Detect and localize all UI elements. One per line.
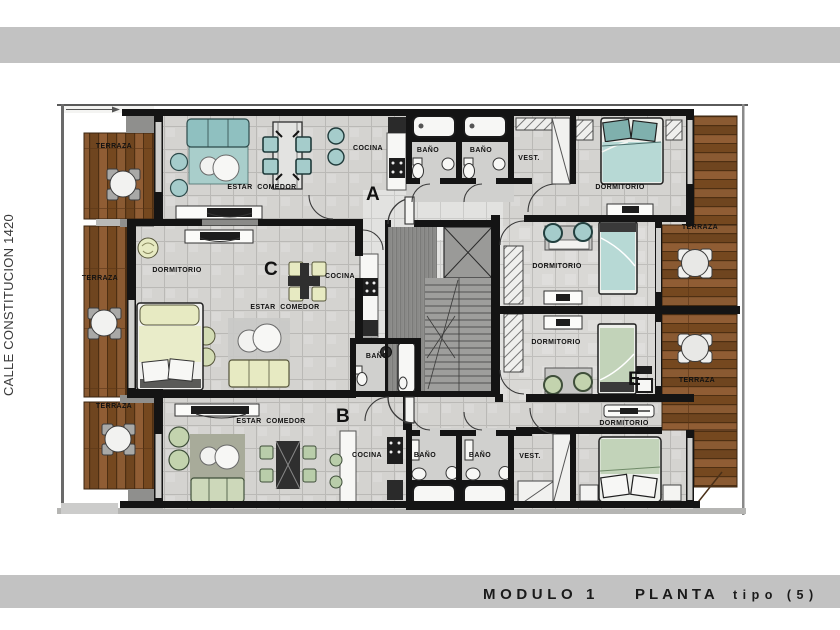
svg-text:ESTAR COMEDOR: ESTAR COMEDOR [236, 418, 305, 425]
svg-text:BAÑO: BAÑO [414, 450, 436, 459]
svg-text:DORMITORIO: DORMITORIO [599, 420, 649, 427]
svg-text:E: E [628, 369, 641, 390]
svg-text:MODULO 1: MODULO 1 [483, 586, 599, 603]
svg-text:ESTAR COMEDOR: ESTAR COMEDOR [250, 304, 319, 311]
svg-text:TERRAZA: TERRAZA [96, 143, 132, 150]
svg-text:DORMITORIO: DORMITORIO [152, 267, 202, 274]
svg-text:C: C [264, 259, 278, 280]
svg-text:TERRAZA: TERRAZA [679, 377, 715, 384]
svg-text:BAÑO: BAÑO [366, 351, 388, 360]
svg-text:B: B [336, 406, 350, 427]
svg-text:BAÑO: BAÑO [469, 450, 491, 459]
svg-text:TERRAZA: TERRAZA [96, 403, 132, 410]
svg-text:VEST.: VEST. [518, 155, 539, 162]
svg-text:ESTAR COMEDOR: ESTAR COMEDOR [227, 184, 296, 191]
svg-text:COCINA: COCINA [325, 273, 355, 280]
svg-text:DORMITORIO: DORMITORIO [532, 263, 582, 270]
svg-text:DORMITORIO: DORMITORIO [595, 184, 645, 191]
svg-text:A: A [366, 184, 380, 205]
svg-text:COCINA: COCINA [352, 452, 382, 459]
svg-text:BAÑO: BAÑO [470, 145, 492, 154]
svg-text:TERRAZA: TERRAZA [82, 275, 118, 282]
svg-text:PLANTA: PLANTA [635, 586, 719, 603]
svg-text:COCINA: COCINA [353, 145, 383, 152]
svg-text:VEST.: VEST. [519, 453, 540, 460]
svg-text:BAÑO: BAÑO [417, 145, 439, 154]
svg-text:tipo (5): tipo (5) [733, 588, 819, 602]
svg-text:DORMITORIO: DORMITORIO [531, 339, 581, 346]
svg-text:CALLE CONSTITUCION 1420: CALLE CONSTITUCION 1420 [1, 214, 16, 396]
svg-text:TERRAZA: TERRAZA [682, 224, 718, 231]
